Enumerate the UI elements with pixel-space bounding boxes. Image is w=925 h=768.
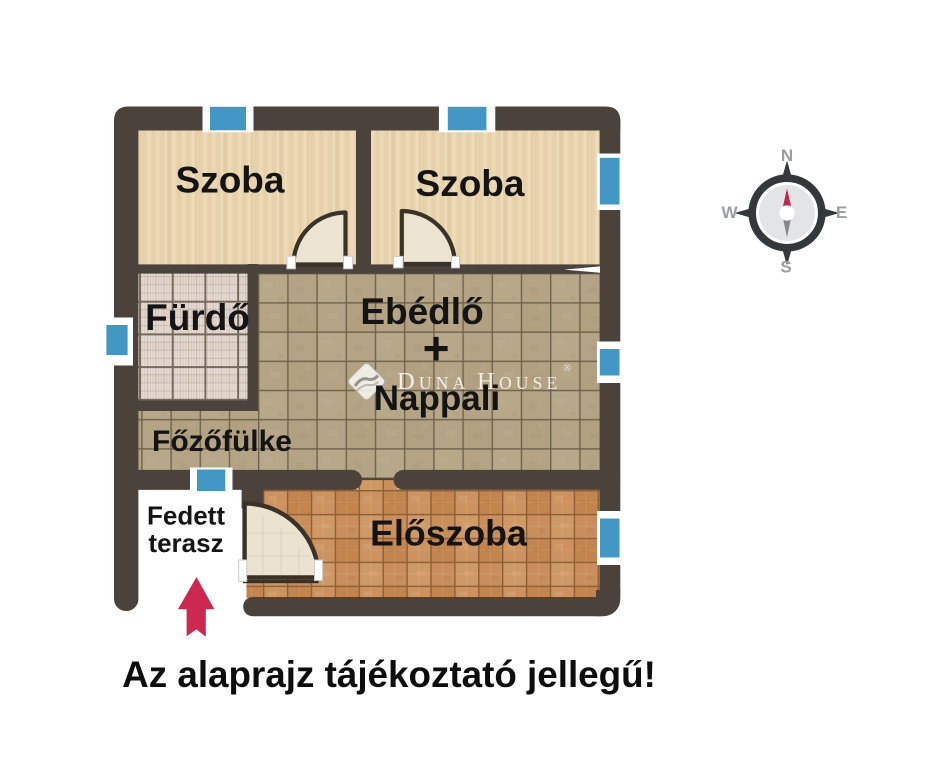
svg-text:terasz: terasz	[148, 528, 223, 558]
svg-text:Főzőfülke: Főzőfülke	[152, 425, 292, 458]
svg-text:N: N	[781, 146, 793, 165]
svg-text:+: +	[423, 322, 450, 374]
svg-text:Nappali: Nappali	[374, 379, 500, 418]
svg-text:Fedett: Fedett	[147, 501, 225, 531]
svg-text:®: ®	[563, 362, 571, 374]
svg-text:Előszoba: Előszoba	[370, 514, 528, 554]
svg-text:W: W	[721, 203, 738, 222]
svg-text:E: E	[836, 203, 847, 222]
svg-text:Szoba: Szoba	[176, 160, 285, 201]
svg-text:Fürdő: Fürdő	[145, 297, 250, 338]
svg-text:S: S	[780, 258, 791, 277]
svg-text:Az alaprajz tájékoztató jelleg: Az alaprajz tájékoztató jellegű!	[122, 654, 656, 695]
svg-text:Szoba: Szoba	[416, 163, 525, 204]
